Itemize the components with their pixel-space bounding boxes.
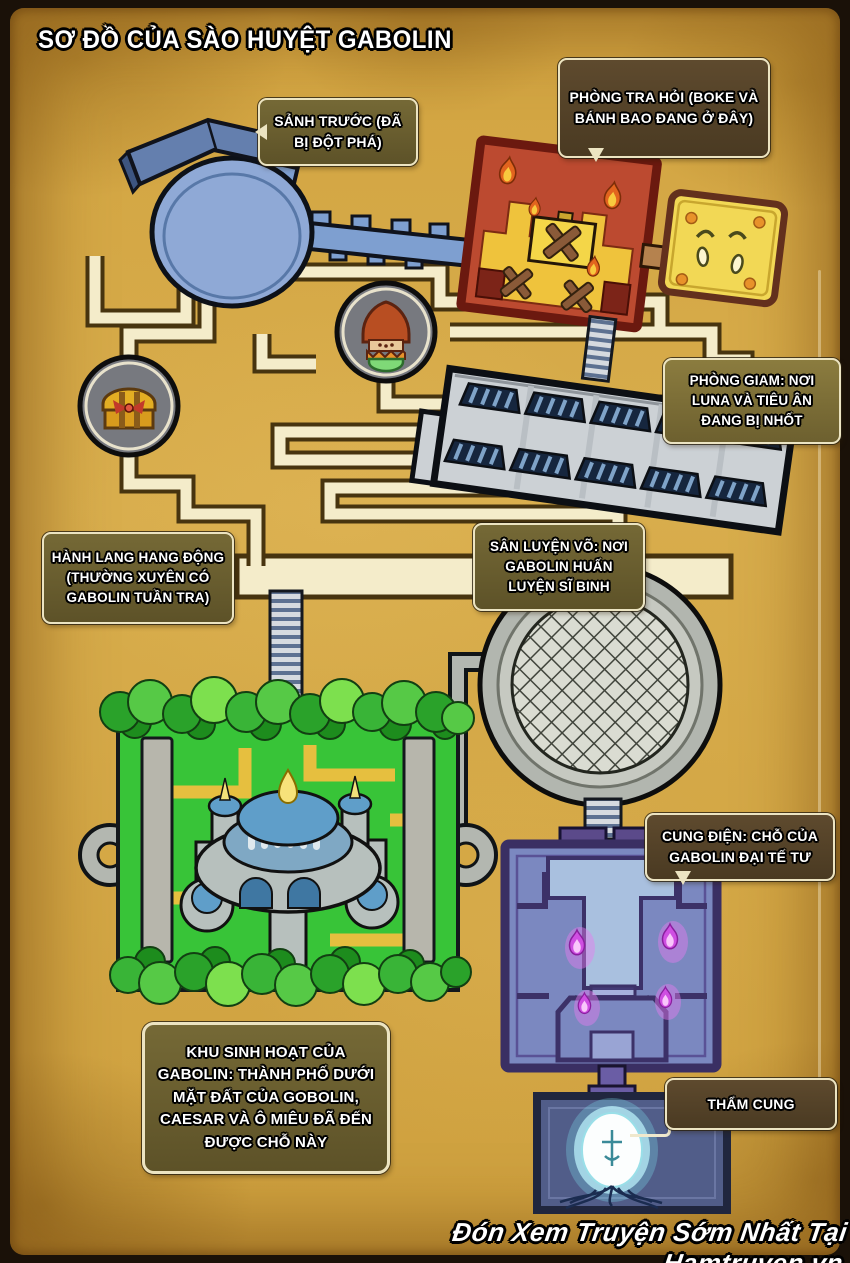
label-training-yard: SÂN LUYỆN VÕ: NƠI GABOLIN HUẤN LUYỆN SĨ … [473,523,645,611]
label-front-hall: SẢNH TRƯỚC (ĐÃ BỊ ĐỘT PHÁ) [258,98,418,166]
garden-pillar-left [142,738,172,962]
interrogation-room [461,140,658,328]
watermark: Đón Xem Truyện Sớm Nhất Tại Hamtruyen.vn [331,1217,850,1263]
label-palace: CUNG ĐIỆN: CHỖ CỦA GABOLIN ĐẠI TẾ TƯ [645,813,835,881]
garden-pillar-right [404,738,434,962]
living-area-garden [100,677,474,1006]
treasure-chest-marker [80,357,178,455]
label-interrogation-room: PHÒNG TRA HỎI (BOKE VÀ BÁNH BAO ĐANG Ở Đ… [558,58,770,158]
bun-creature-marker [337,283,435,381]
entry-corridor [300,212,470,268]
treasure-chest-icon [103,389,155,428]
label-living-area: KHU SINH HOẠT CỦA GABOLIN: THÀNH PHỐ DƯỚ… [142,1022,390,1174]
ladder-to-prison [582,317,615,382]
bun-creature-icon [363,302,409,371]
holding-room [660,192,785,305]
page-title: SƠ ĐỒ CỦA SÀO HUYỆT GABOLIN [38,26,452,55]
front-hall-oval [152,158,312,306]
lair-map-illustration [0,0,850,1263]
label-inner-sanctum: THẨM CUNG [665,1078,837,1130]
label-cave-corridor: HÀNH LANG HANG ĐỘNG (THƯỜNG XUYÊN CÓ GAB… [42,532,234,624]
label-prison: PHÒNG GIAM: NƠI LUNA VÀ TIÊU ÂN ĐANG BỊ … [663,358,841,444]
comic-page: SƠ ĐỒ CỦA SÀO HUYỆT GABOLIN SẢNH TRƯỚC (… [0,0,850,1263]
